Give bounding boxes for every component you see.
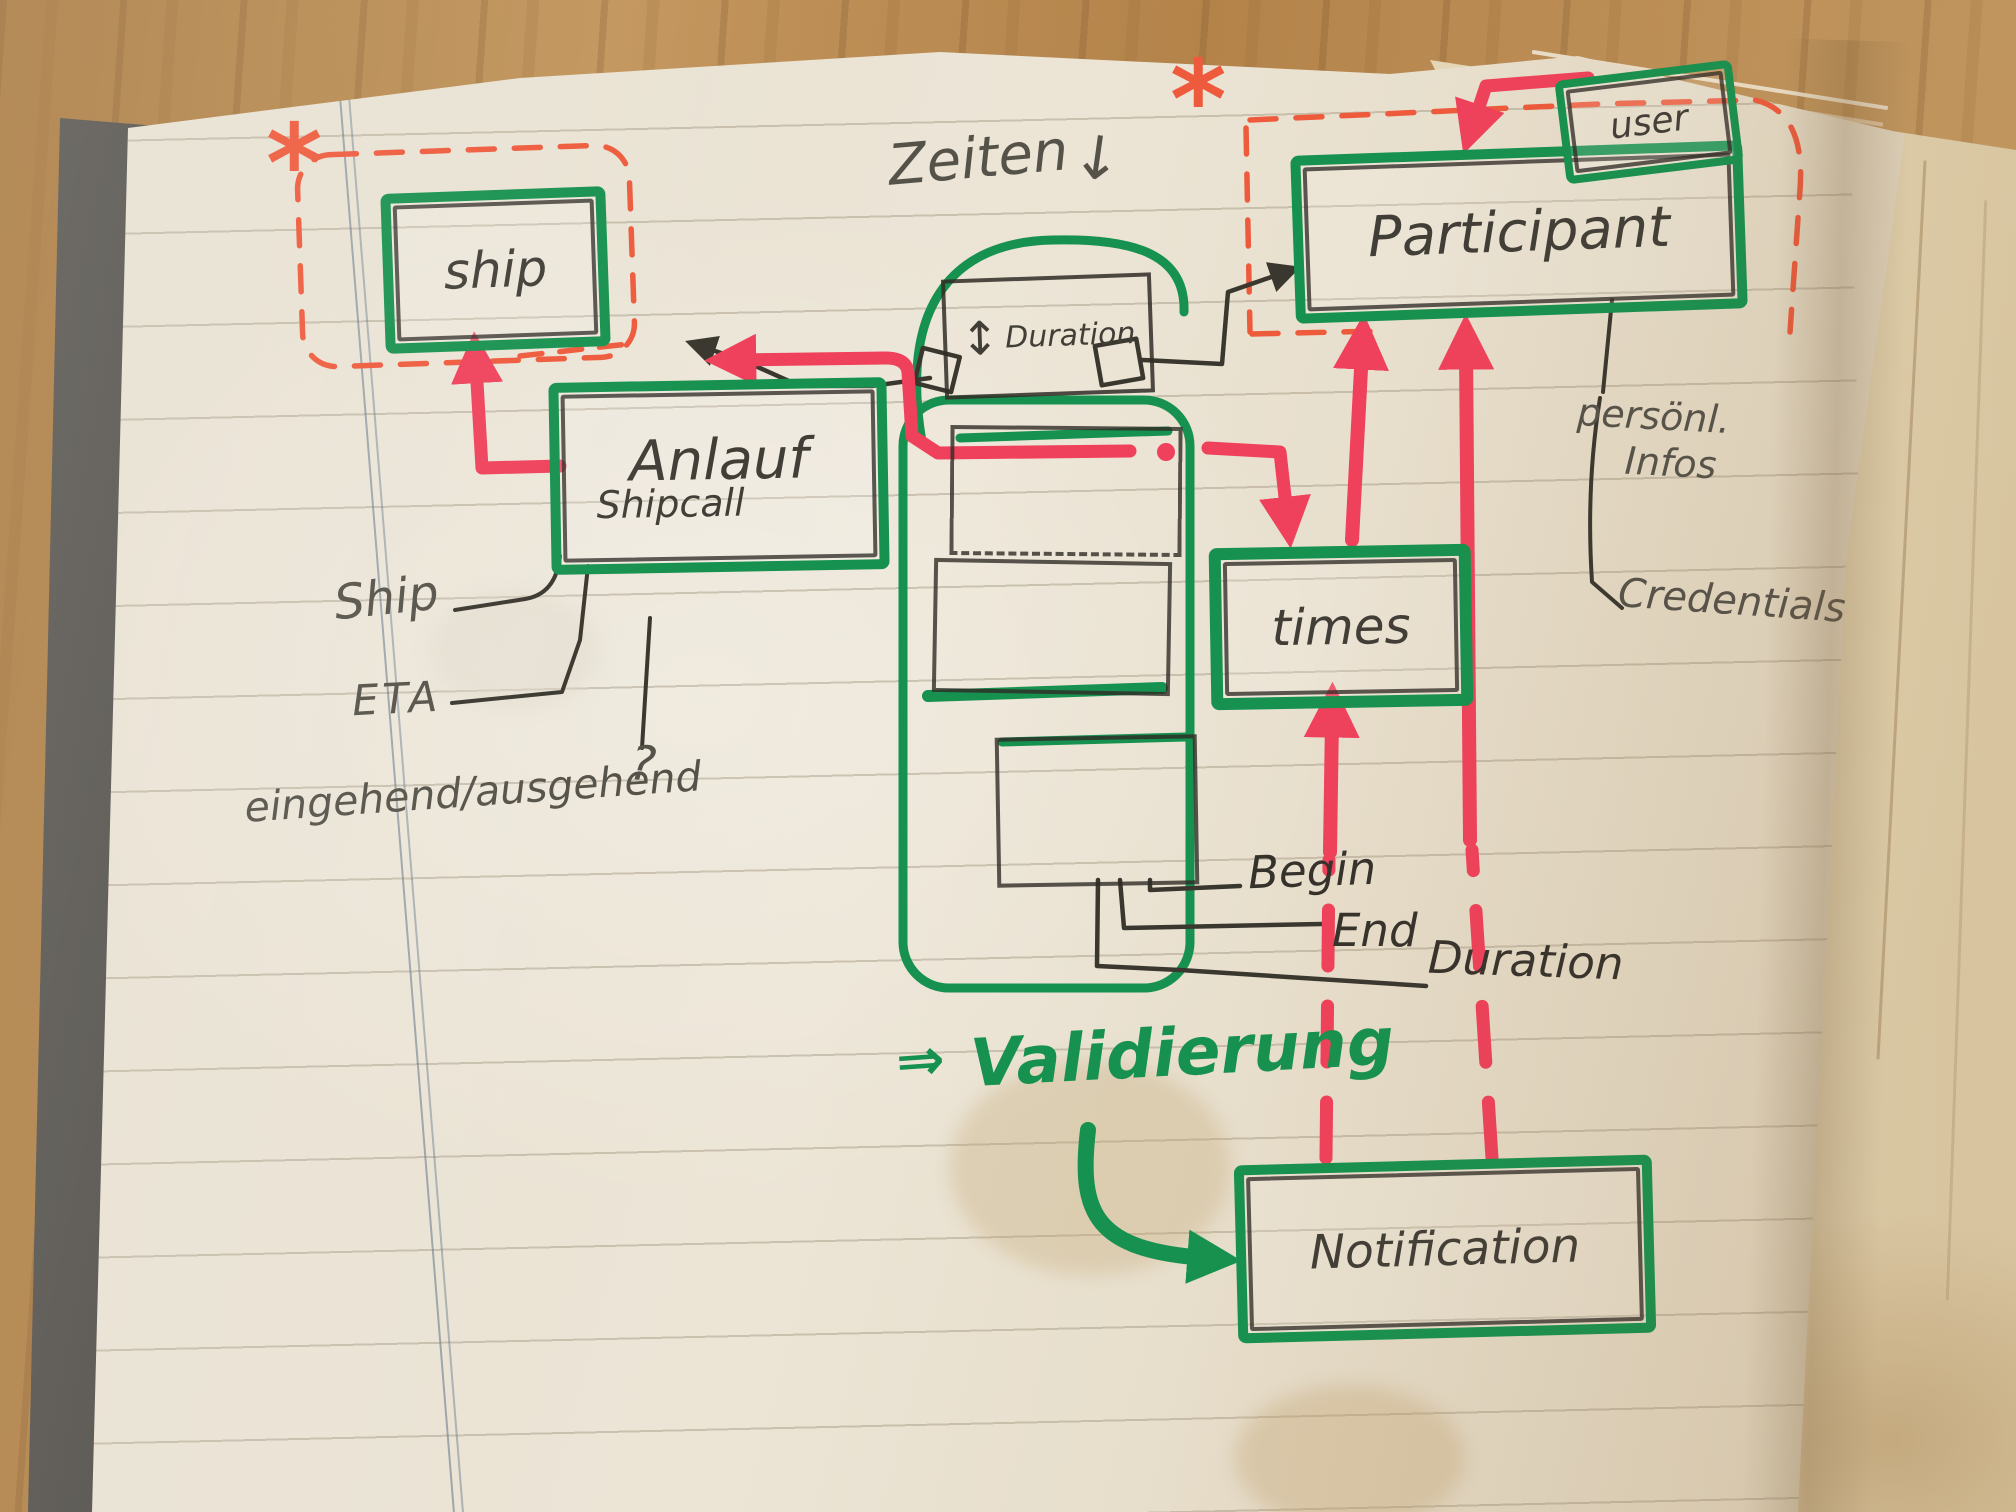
asterisk-ship: * xyxy=(266,116,322,213)
duration-attr-label: Duration xyxy=(1427,931,1624,991)
arrow-times-to-participant xyxy=(1352,350,1362,540)
arrow-notification-to-times xyxy=(1330,718,1332,852)
validierung-arrow-icon: ⇒ xyxy=(894,1024,947,1095)
times-entity-box: times xyxy=(1209,544,1474,711)
zeiten-down-arrow-icon: ↓ xyxy=(1067,121,1127,197)
updown-arrow-icon: ↕ xyxy=(960,311,1000,366)
participant-dashed-left xyxy=(1246,128,1250,332)
zeit-row-1 xyxy=(949,425,1182,557)
connector-personal-infos xyxy=(1603,300,1612,392)
personal-infos-line1: persönl. xyxy=(1576,390,1731,444)
anlauf-entity-sublabel: Shipcall xyxy=(596,480,745,527)
zeit-row-2 xyxy=(932,558,1172,696)
notebook-photo: ship Anlauf Shipcall Participant user ↕ … xyxy=(0,0,2016,1512)
end-label: End xyxy=(1332,904,1418,957)
connector-ship-attr xyxy=(455,556,560,610)
ship-attr-label: Ship xyxy=(331,565,441,632)
personal-infos-line2: Infos xyxy=(1624,438,1729,489)
ship-entity-box: ship xyxy=(380,186,610,354)
arrow-validierung-to-notification xyxy=(1086,1130,1205,1258)
times-entity-label: times xyxy=(1271,597,1411,657)
duration-box: ↕ Duration xyxy=(941,272,1155,399)
arrow-zeitrow-to-times xyxy=(1208,448,1287,515)
begin-label: Begin xyxy=(1247,842,1377,899)
personal-infos-label: persönl. Infos xyxy=(1574,390,1731,489)
arrow-anlauf-to-ship xyxy=(476,365,560,468)
duration-box-label: Duration xyxy=(1005,315,1136,355)
arrow-notification-to-participant-dashed xyxy=(1472,850,1492,1158)
participant-entity-label: Participant xyxy=(1367,194,1671,270)
user-entity-box: user xyxy=(1554,60,1743,185)
notification-entity-label: Notification xyxy=(1309,1218,1581,1280)
participant-dashed-bottom xyxy=(1252,331,1380,334)
anlauf-entity-box: Anlauf Shipcall xyxy=(548,377,889,575)
connector-duration-to-participant xyxy=(1142,274,1280,364)
asterisk-participant: * xyxy=(1170,52,1226,149)
connector-eta xyxy=(452,566,588,703)
ship-entity-label: ship xyxy=(443,239,548,301)
zeit-row-3 xyxy=(995,734,1200,888)
connector-eingehend xyxy=(642,618,650,748)
user-entity-label: user xyxy=(1608,97,1691,147)
eta-label: ETA xyxy=(351,672,443,726)
notification-entity-box: Notification xyxy=(1234,1155,1657,1344)
